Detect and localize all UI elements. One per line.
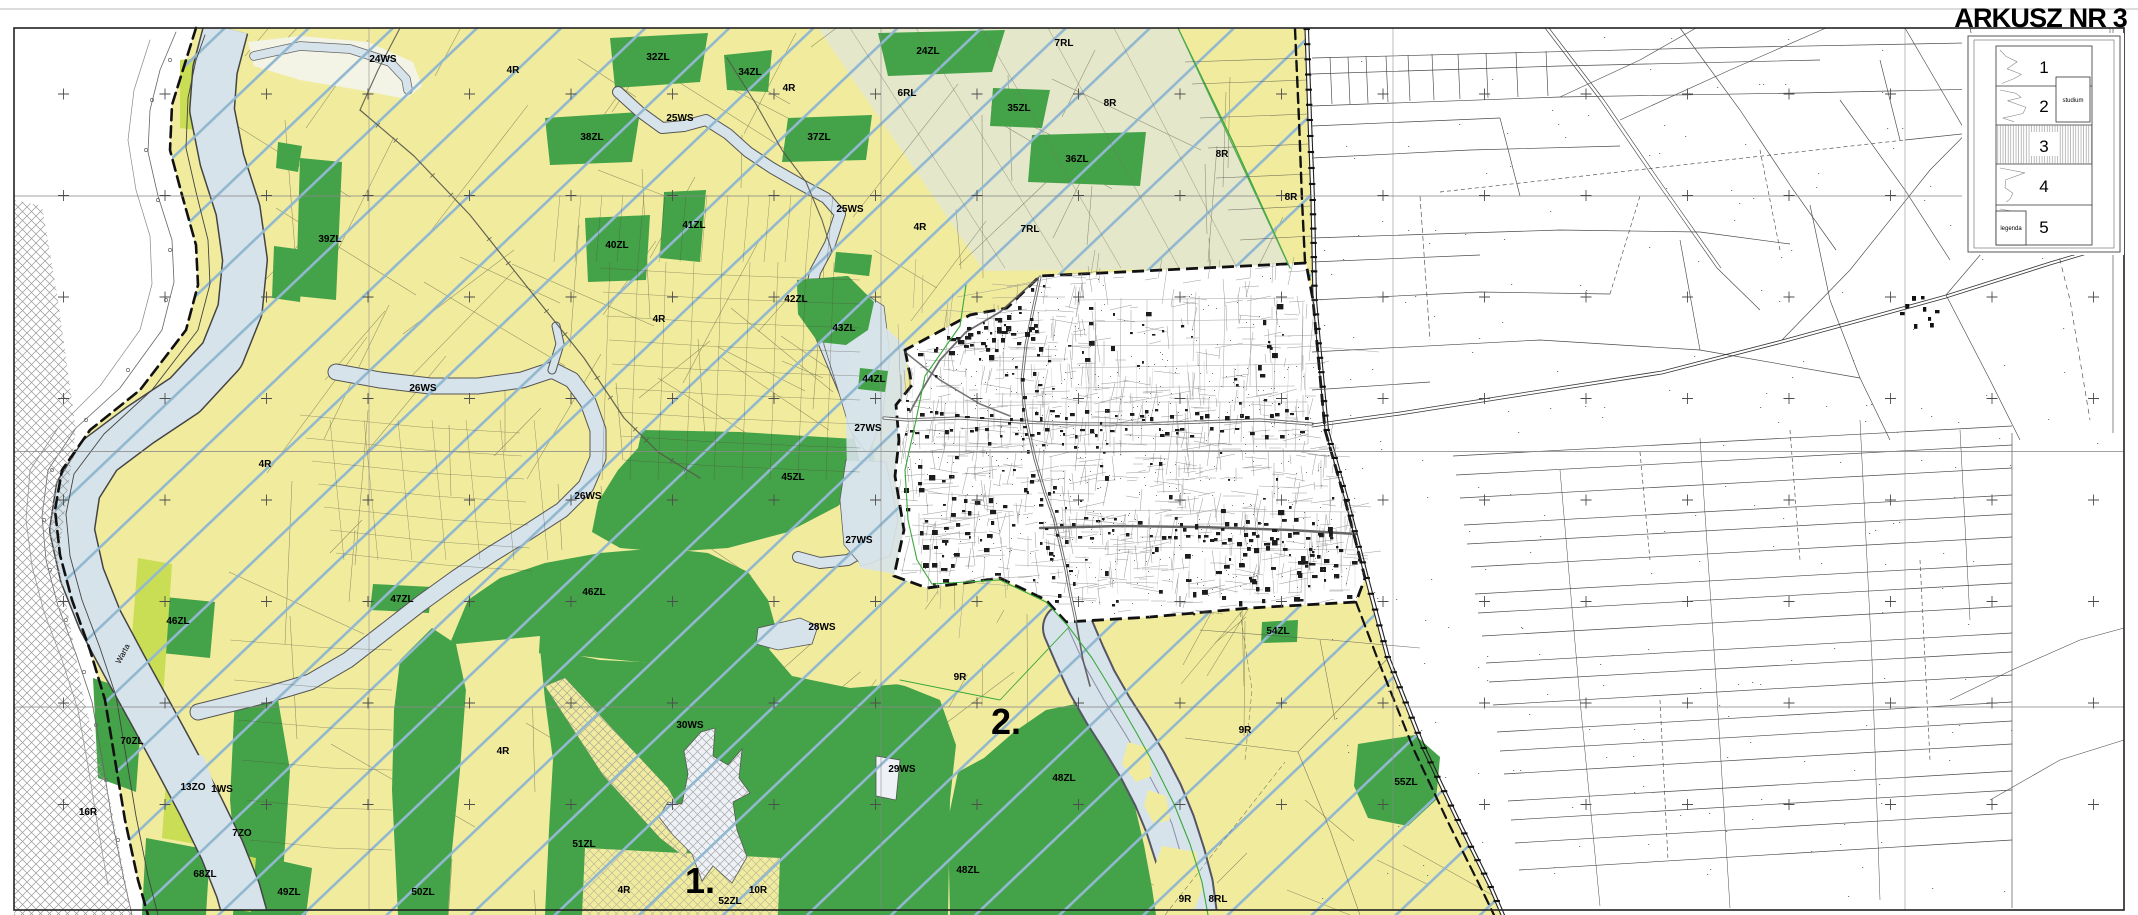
svg-text:34ZL: 34ZL [738, 67, 761, 78]
svg-text:36ZL: 36ZL [1065, 154, 1088, 165]
svg-text:16R: 16R [79, 807, 98, 818]
svg-text:10R: 10R [749, 885, 768, 896]
svg-text:4: 4 [2039, 177, 2048, 196]
svg-text:48ZL: 48ZL [1052, 773, 1075, 784]
svg-text:9R: 9R [954, 672, 968, 683]
svg-text:37ZL: 37ZL [807, 132, 830, 143]
svg-text:1WS: 1WS [211, 784, 233, 795]
svg-text:39ZL: 39ZL [318, 234, 341, 245]
svg-text:50ZL: 50ZL [411, 887, 434, 898]
svg-text:24ZL: 24ZL [916, 46, 939, 57]
svg-text:41ZL: 41ZL [682, 220, 705, 231]
svg-text:40ZL: 40ZL [605, 240, 628, 251]
svg-text:52ZL: 52ZL [718, 896, 741, 907]
svg-text:5: 5 [2039, 218, 2048, 237]
svg-text:70ZL: 70ZL [120, 736, 143, 747]
svg-text:7RL: 7RL [1021, 224, 1040, 235]
svg-text:38ZL: 38ZL [580, 132, 603, 143]
svg-text:54ZL: 54ZL [1266, 626, 1289, 637]
svg-text:48ZL: 48ZL [956, 865, 979, 876]
svg-text:1: 1 [2039, 58, 2048, 77]
svg-text:26WS: 26WS [574, 491, 602, 502]
svg-text:46ZL: 46ZL [166, 616, 189, 627]
svg-text:51ZL: 51ZL [572, 839, 595, 850]
svg-text:4R: 4R [497, 746, 511, 757]
svg-text:4R: 4R [653, 314, 667, 325]
svg-text:legenda: legenda [2000, 226, 2022, 232]
svg-text:42ZL: 42ZL [784, 294, 807, 305]
svg-text:2: 2 [2039, 97, 2048, 116]
svg-text:46ZL: 46ZL [582, 587, 605, 598]
svg-text:13ZO: 13ZO [180, 782, 205, 793]
svg-text:30WS: 30WS [676, 720, 704, 731]
svg-text:4R: 4R [618, 885, 632, 896]
svg-text:9R: 9R [1179, 894, 1193, 905]
svg-text:7RL: 7RL [1055, 38, 1074, 49]
svg-text:68ZL: 68ZL [193, 869, 216, 880]
svg-text:24WS: 24WS [369, 54, 397, 65]
svg-text:8R: 8R [1216, 149, 1230, 160]
svg-text:3: 3 [2039, 137, 2048, 156]
svg-text:29WS: 29WS [888, 764, 916, 775]
svg-text:7ZO: 7ZO [232, 828, 252, 839]
svg-text:2.: 2. [991, 701, 1021, 742]
svg-text:8RL: 8RL [1209, 894, 1228, 905]
svg-text:44ZL: 44ZL [862, 374, 885, 385]
svg-text:25WS: 25WS [836, 204, 864, 215]
svg-text:27WS: 27WS [845, 535, 873, 546]
svg-text:45ZL: 45ZL [781, 472, 804, 483]
svg-text:4R: 4R [914, 222, 928, 233]
svg-text:1.: 1. [685, 860, 715, 901]
svg-text:47ZL: 47ZL [390, 594, 413, 605]
svg-text:4R: 4R [783, 83, 797, 94]
svg-text:27WS: 27WS [854, 423, 882, 434]
svg-text:28WS: 28WS [808, 622, 836, 633]
svg-text:8R: 8R [1285, 192, 1299, 203]
svg-text:32ZL: 32ZL [646, 52, 669, 63]
svg-text:4R: 4R [507, 65, 521, 76]
svg-text:6RL: 6RL [898, 88, 917, 99]
svg-text:4R: 4R [259, 459, 273, 470]
svg-text:43ZL: 43ZL [832, 323, 855, 334]
svg-text:8R: 8R [1104, 98, 1118, 109]
svg-text:35ZL: 35ZL [1007, 103, 1030, 114]
svg-text:49ZL: 49ZL [277, 887, 300, 898]
svg-text:26WS: 26WS [409, 383, 437, 394]
svg-text:studium: studium [2062, 98, 2083, 104]
svg-text:55ZL: 55ZL [1394, 777, 1417, 788]
svg-text:ARKUSZ NR 3: ARKUSZ NR 3 [1954, 3, 2127, 33]
svg-text:25WS: 25WS [666, 113, 694, 124]
svg-text:9R: 9R [1239, 725, 1253, 736]
